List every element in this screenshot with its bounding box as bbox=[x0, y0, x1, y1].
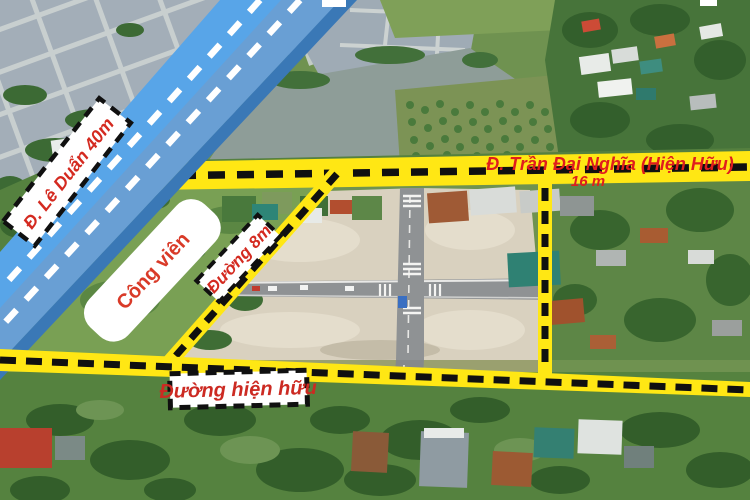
svg-text:Đ. Trần Đại Nghĩa (Hiện Hữu): Đ. Trần Đại Nghĩa (Hiện Hữu) bbox=[486, 154, 734, 174]
svg-text:Đường hiện hữu: Đường hiện hữu bbox=[159, 377, 317, 403]
svg-text:16 m: 16 m bbox=[571, 173, 605, 190]
